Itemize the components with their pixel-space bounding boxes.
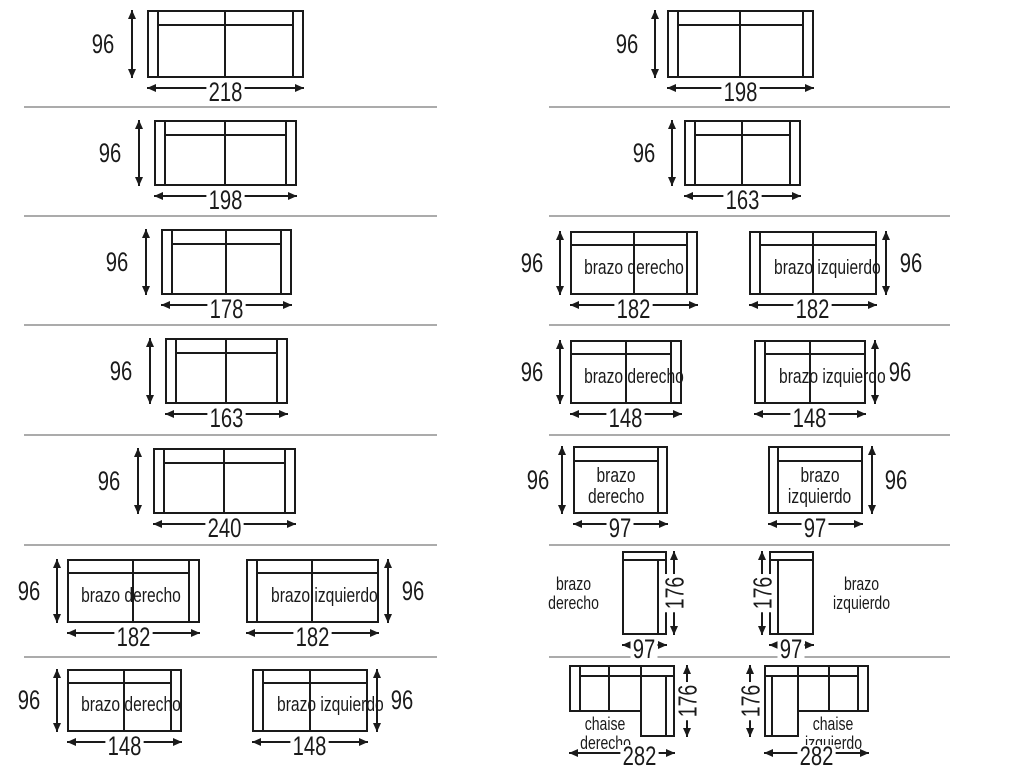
backrest-line [264,682,366,684]
separator-line [549,434,950,436]
right-sofa-148-brazo-izquierdo-diagram: brazo izquierdo 96 148 [754,340,866,404]
width-dim: 218 [147,81,304,103]
seat-divider-line [828,665,830,710]
body-bottom-line [797,710,869,712]
sofa-dimensions-sheet: 96 218 96 198 96 178 96 163 [0,0,1024,768]
body-bottom-line [569,710,642,712]
backrest-line [761,244,875,246]
backrest-line [766,675,857,677]
depth-dim: 96 [520,469,556,491]
backrest-line [258,572,377,574]
depth-dim: 96 [384,689,420,711]
length-dim: 176 [740,682,762,721]
depth-dim: 96 [99,251,135,273]
depth-arrow [882,231,890,295]
chaise-outline [640,710,675,737]
right-chaise-module-brazo-derecho-diagram: brazoderecho 176 97 [622,551,667,635]
chaise-divider-line [797,665,799,710]
right-arm-line [276,338,278,404]
right-arm-line [857,665,859,710]
seat-divider-line [608,665,610,710]
right-module-97-brazo-izquierdo-diagram: brazoizquierdo 96 97 [768,446,863,514]
chaise-arm-line [771,677,773,735]
depth-arrow [128,10,136,78]
width-dim: 97 [768,517,863,539]
depth-arrow [651,10,659,78]
width-dim: 163 [684,189,801,211]
module-label: brazoderecho [532,575,616,613]
depth-arrow [142,229,150,295]
width-dim: 148 [67,735,182,757]
width-dim: 182 [67,626,200,648]
seat-divider-line [223,448,225,514]
sofa-label: brazo derecho [67,695,172,716]
length-dim: 176 [664,574,686,613]
right-arm-line [789,120,791,186]
sofa-label: brazo izquierdo [256,586,379,607]
right-chaise-sofa-izquierdo-diagram: chaiseizquierdo 176 282 [764,665,869,712]
depth-dim: 96 [609,33,645,55]
width-dim: 97 [769,638,814,660]
left-sofa-218-diagram: 96 218 [147,10,304,78]
sofa-body-outline [764,665,869,712]
depth-arrow [556,231,564,295]
sofa-label: brazo derecho [570,367,672,388]
depth-arrow [134,448,142,514]
backrest-line [69,682,170,684]
depth-arrow [135,120,143,186]
depth-arrow [668,120,676,186]
depth-dim: 96 [91,470,127,492]
separator-line [549,215,950,217]
width-dim: 282 [587,745,693,767]
seat-divider-line [741,120,743,186]
width-dim: 178 [161,298,292,320]
separator-line [24,215,437,217]
left-arm-line [164,120,166,186]
backrest-line [779,460,861,462]
left-arm-line [163,448,165,514]
chaise-divider-line [640,665,642,710]
right-sofa-148-brazo-derecho-diagram: brazo derecho 96 148 [570,340,682,404]
right-arm-line [657,561,659,633]
depth-arrow [868,446,876,514]
seat-divider-line [224,120,226,186]
left-sofa-148-brazo-izquierdo-diagram: brazo izquierdo 96 148 [252,669,368,732]
left-sofa-198-diagram: 96 198 [154,120,297,186]
left-arm-line [579,665,581,710]
depth-arrow [53,669,61,732]
right-arm-line [802,10,804,78]
width-dim: 198 [667,81,814,103]
module-label: brazoizquierdo [820,575,904,613]
depth-dim: 96 [514,361,550,383]
right-sofa-182-brazo-izquierdo-diagram: brazo izquierdo 96 182 [749,231,877,295]
seat-divider-line [224,10,226,78]
chaise-outline [764,710,799,737]
left-arm-line [694,120,696,186]
depth-arrow [373,669,381,732]
chaise-arm-line [665,677,667,735]
sofa-label: brazo izquierdo [759,258,877,279]
width-dim: 148 [252,735,368,757]
seat-divider-line [739,10,741,78]
separator-line [549,324,950,326]
depth-arrow [384,559,392,623]
separator-line [24,544,437,546]
right-arm-line [280,229,282,295]
right-chaise-sofa-derecho-diagram: chaisederecho 176 282 [569,665,675,712]
seat-divider-line [225,338,227,404]
right-sofa-182-brazo-derecho-diagram: brazo derecho 96 182 [570,231,698,295]
length-dim: 176 [677,682,699,721]
width-dim: 163 [165,407,288,429]
depth-arrow [53,559,61,623]
left-arm-line [171,229,173,295]
width-dim: 148 [754,407,866,429]
width-dim: 282 [764,745,869,767]
backrest-line [69,572,188,574]
seat-divider-line [225,229,227,295]
width-dim: 198 [154,189,297,211]
sofa-label: brazo izquierdo [764,367,866,388]
width-dim: 148 [570,407,682,429]
right-sofa-198-diagram: 96 198 [667,10,814,78]
sofa-label: brazo derecho [570,258,688,279]
depth-dim: 96 [92,142,128,164]
right-arm-line [285,120,287,186]
depth-dim: 96 [626,142,662,164]
left-sofa-178-diagram: 96 178 [161,229,292,295]
depth-dim: 96 [11,689,47,711]
right-sofa-163-diagram: 96 163 [684,120,801,186]
width-dim: 182 [570,298,698,320]
depth-arrow [871,340,879,404]
sofa-body-outline [569,665,675,712]
sofa-label: brazoderecho [573,466,659,508]
left-sofa-148-brazo-derecho-diagram: brazo derecho 96 148 [67,669,182,732]
right-arm-line [292,10,294,78]
depth-arrow [146,338,154,404]
depth-dim: 96 [893,252,929,274]
right-module-97-brazo-derecho-diagram: brazoderecho 96 97 [573,446,668,514]
left-arm-line [677,10,679,78]
width-dim: 182 [749,298,877,320]
backrest-line [575,460,657,462]
depth-dim: 96 [103,360,139,382]
depth-dim: 96 [878,469,914,491]
sofa-label: brazo derecho [67,586,190,607]
depth-dim: 96 [11,580,47,602]
left-arm-line [175,338,177,404]
backrest-line [572,353,670,355]
backrest-line [572,244,686,246]
depth-dim: 96 [882,361,918,383]
width-dim: 240 [153,517,296,539]
left-sofa-240-diagram: 96 240 [153,448,296,514]
length-dim: 176 [752,574,774,613]
left-sofa-182-brazo-derecho-diagram: brazo derecho 96 182 [67,559,200,623]
depth-arrow [558,446,566,514]
left-sofa-182-brazo-izquierdo-diagram: brazo izquierdo 96 182 [246,559,379,623]
left-arm-line [157,10,159,78]
width-dim: 97 [622,638,667,660]
depth-arrow [556,340,564,404]
backrest-line [581,675,673,677]
left-sofa-163-diagram: 96 163 [165,338,288,404]
separator-line [24,434,437,436]
separator-line [24,656,437,658]
width-dim: 97 [573,517,668,539]
backrest-line [766,353,864,355]
right-chaise-module-brazo-izquierdo-diagram: brazoizquierdo 176 97 [769,551,814,635]
depth-dim: 96 [514,252,550,274]
separator-line [549,656,950,658]
depth-dim: 96 [85,33,121,55]
sofa-label: brazo izquierdo [262,695,368,716]
separator-line [549,544,950,546]
right-arm-line [284,448,286,514]
depth-dim: 96 [395,580,431,602]
separator-line [24,324,437,326]
sofa-label: brazoizquierdo [777,466,863,508]
width-dim: 182 [246,626,379,648]
